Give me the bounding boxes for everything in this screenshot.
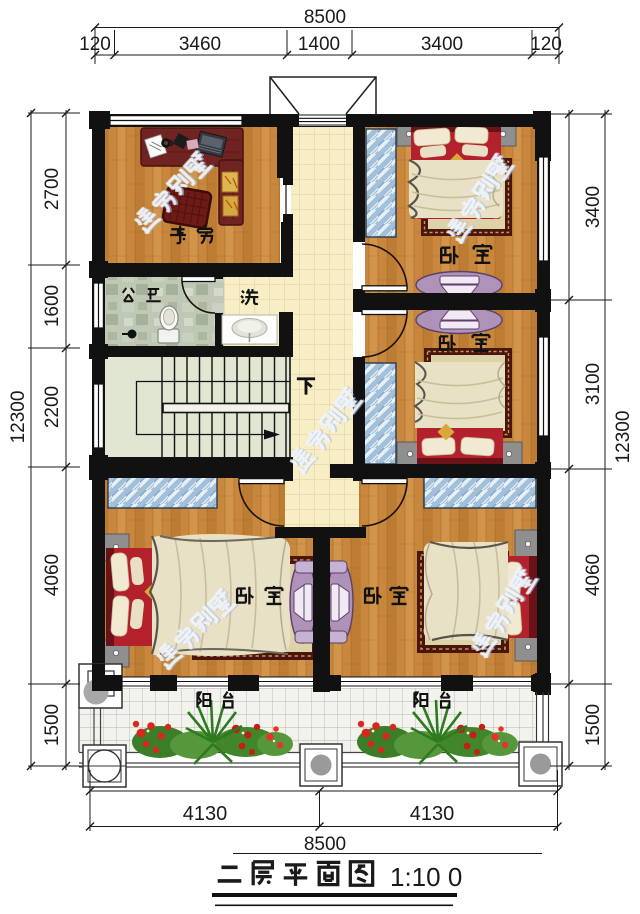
svg-text:8500: 8500 (304, 7, 346, 28)
svg-text:12300: 12300 (613, 411, 634, 464)
svg-text:120: 120 (530, 34, 562, 55)
svg-text:8500: 8500 (304, 834, 346, 855)
svg-text:4060: 4060 (42, 554, 63, 596)
svg-text:1:10 0: 1:10 0 (390, 862, 462, 892)
svg-text:12300: 12300 (8, 391, 29, 444)
svg-text:2200: 2200 (42, 386, 63, 428)
svg-text:3400: 3400 (583, 186, 604, 228)
svg-text:4060: 4060 (583, 554, 604, 596)
svg-text:2700: 2700 (42, 168, 63, 210)
svg-text:3460: 3460 (179, 34, 221, 55)
svg-text:4130: 4130 (183, 803, 228, 825)
svg-text:3400: 3400 (421, 34, 463, 55)
svg-text:1600: 1600 (42, 285, 63, 327)
svg-text:3100: 3100 (583, 363, 604, 405)
svg-text:1500: 1500 (42, 704, 63, 746)
svg-text:1400: 1400 (298, 34, 340, 55)
svg-text:4130: 4130 (410, 803, 455, 825)
svg-text:120: 120 (79, 34, 111, 55)
svg-text:1500: 1500 (583, 704, 604, 746)
